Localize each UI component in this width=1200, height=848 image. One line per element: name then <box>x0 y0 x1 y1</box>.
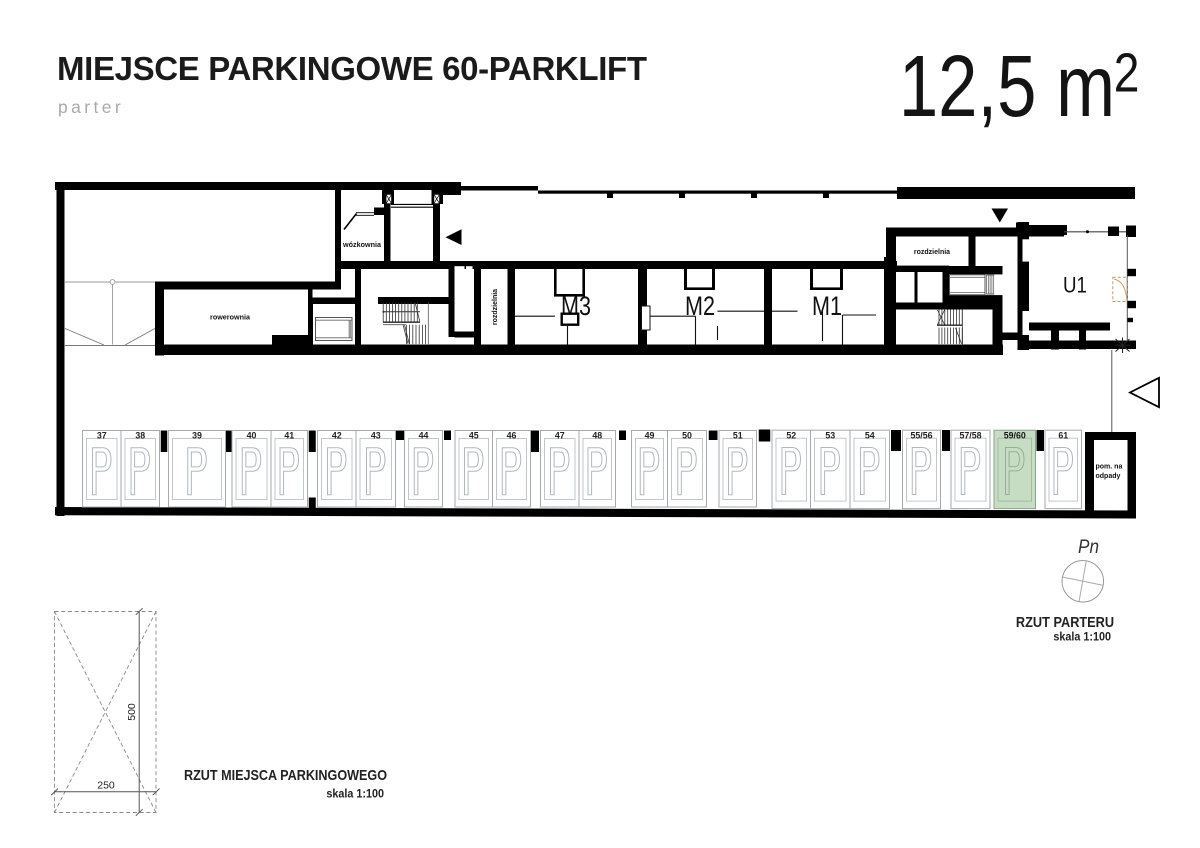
svg-text:skala 1:100: skala 1:100 <box>1053 631 1111 644</box>
svg-text:43: 43 <box>371 430 381 440</box>
svg-text:50: 50 <box>682 430 692 440</box>
svg-text:37: 37 <box>97 430 107 440</box>
svg-text:rozdzielnia: rozdzielnia <box>492 289 499 325</box>
svg-text:54: 54 <box>865 430 876 440</box>
svg-text:U1: U1 <box>1063 274 1087 298</box>
svg-text:42: 42 <box>332 430 342 440</box>
svg-text:38: 38 <box>135 430 145 440</box>
svg-text:59/60: 59/60 <box>1004 430 1026 440</box>
svg-text:39: 39 <box>192 430 202 440</box>
svg-text:45: 45 <box>469 430 479 440</box>
svg-text:250: 250 <box>97 780 115 792</box>
svg-text:40: 40 <box>247 430 257 440</box>
svg-text:12,5 m: 12,5 m <box>899 37 1115 135</box>
svg-text:53: 53 <box>825 430 835 440</box>
svg-text:52: 52 <box>786 430 796 440</box>
svg-text:rowerownia: rowerownia <box>210 313 251 322</box>
svg-text:RZUT PARTERU: RZUT PARTERU <box>1016 614 1114 630</box>
svg-text:M2: M2 <box>685 292 715 322</box>
svg-text:61: 61 <box>1058 430 1068 440</box>
svg-text:51: 51 <box>733 430 743 440</box>
svg-text:55/56: 55/56 <box>910 430 932 440</box>
svg-text:44: 44 <box>419 430 430 440</box>
svg-text:46: 46 <box>507 430 517 440</box>
svg-text:MIEJSCE PARKINGOWE 60-PARKLIFT: MIEJSCE PARKINGOWE 60-PARKLIFT <box>57 50 647 87</box>
svg-text:parter: parter <box>58 97 124 117</box>
svg-text:pom. na: pom. na <box>1096 464 1123 471</box>
svg-text:47: 47 <box>555 430 565 440</box>
svg-text:2: 2 <box>1114 42 1140 104</box>
svg-text:skala 1:100: skala 1:100 <box>326 788 384 801</box>
svg-text:Pn: Pn <box>1078 535 1099 557</box>
svg-text:odpady: odpady <box>1096 473 1121 480</box>
svg-text:wózkownia: wózkownia <box>342 240 382 249</box>
svg-text:500: 500 <box>126 703 138 721</box>
svg-text:M1: M1 <box>812 292 842 322</box>
svg-text:41: 41 <box>284 430 294 440</box>
svg-text:49: 49 <box>645 430 655 440</box>
svg-text:RZUT MIEJSCA PARKINGOWEGO: RZUT MIEJSCA PARKINGOWEGO <box>184 767 387 783</box>
svg-text:48: 48 <box>592 430 602 440</box>
svg-text:57/58: 57/58 <box>959 430 981 440</box>
svg-text:rozdzielnia: rozdzielnia <box>914 249 950 256</box>
